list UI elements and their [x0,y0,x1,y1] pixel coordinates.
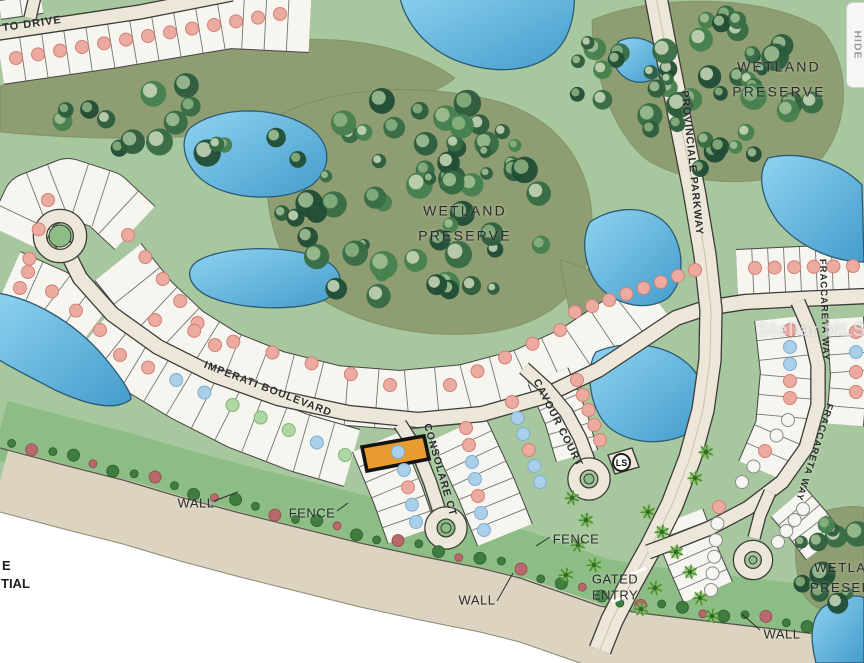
hide-panel-tab[interactable]: HIDE [846,2,864,88]
wetland-preserve-label-bottomright: WETLAND PRESERVE [810,558,864,598]
wetland-preserve-label-center: WETLAND PRESERVE [418,199,512,248]
lift-station-badge: LS [612,453,631,472]
mls-watermark: Stellar MLS [757,320,864,342]
preserve-word: PRESERVE [810,578,864,598]
gated-word: GATED [592,571,638,587]
clipped-text-fragment-1: E [2,558,11,573]
site-plan: TO DRIVE IMPERATI BOULEVARD PROVINCIALE … [0,0,864,663]
wetland-preserve-label-topright: WETLAND PRESERVE [732,55,826,104]
clipped-text-fragment-2: TIAL [1,576,30,591]
gated-entry-label: GATED ENTRY [592,571,638,602]
entry-word: ENTRY [592,587,638,603]
hide-tab-label: HIDE [852,30,864,59]
wetland-word: WETLAND [418,199,512,224]
wall-label-1: WALL [178,496,215,511]
wetland-word: WETLAND [810,558,864,578]
preserve-word: PRESERVE [732,79,826,104]
wetland-word: WETLAND [732,55,826,80]
preserve-word: PRESERVE [418,223,512,248]
fence-label-1: FENCE [289,506,336,521]
wall-label-2: WALL [459,593,496,608]
fence-label-2: FENCE [553,532,600,547]
wall-label-3: WALL [764,627,801,642]
